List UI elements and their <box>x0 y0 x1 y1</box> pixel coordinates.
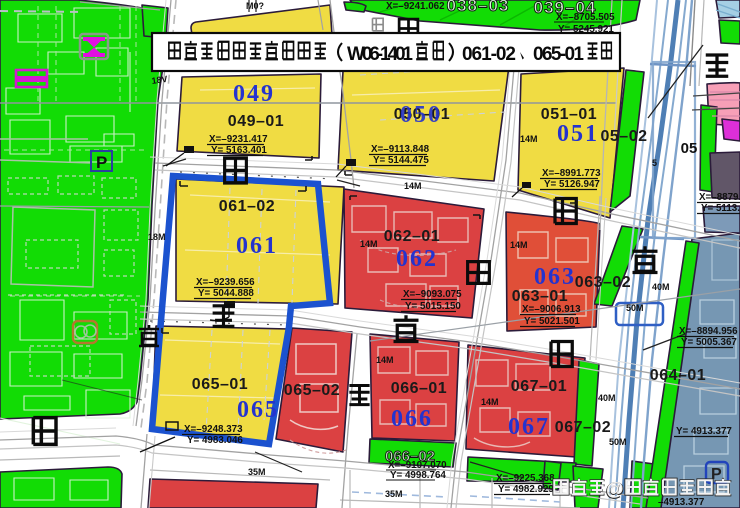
svg-text:062: 062 <box>396 246 438 272</box>
svg-text:Y= 5144.475: Y= 5144.475 <box>373 155 429 166</box>
svg-text:050: 050 <box>400 102 442 128</box>
svg-text:061: 061 <box>236 233 278 259</box>
svg-text:@: @ <box>606 479 624 499</box>
svg-text:X=–9225.368: X=–9225.368 <box>496 473 555 484</box>
svg-text:14M: 14M <box>404 181 422 191</box>
svg-text:14M: 14M <box>510 240 528 250</box>
svg-text:14M: 14M <box>360 239 378 249</box>
svg-text:063: 063 <box>534 264 576 290</box>
svg-text:40M: 40M <box>598 393 616 403</box>
svg-text:066–01: 066–01 <box>391 380 447 397</box>
svg-text:X=–9006.913: X=–9006.913 <box>522 304 581 315</box>
svg-text:35M: 35M <box>248 467 266 477</box>
svg-text:50M: 50M <box>626 303 644 313</box>
svg-text:05: 05 <box>681 140 698 157</box>
svg-text:X=–8705.505: X=–8705.505 <box>556 12 615 23</box>
svg-text:063–02: 063–02 <box>575 274 631 291</box>
svg-text:064–01: 064–01 <box>650 367 706 384</box>
svg-text:065–02: 065–02 <box>284 382 340 399</box>
svg-text:Y= 4998.764: Y= 4998.764 <box>390 470 446 481</box>
svg-text:Y= 5015.150: Y= 5015.150 <box>405 301 461 312</box>
svg-text:065-01: 065-01 <box>533 44 584 65</box>
svg-text:X=–8991.773: X=–8991.773 <box>542 168 601 179</box>
svg-text:W06-1401: W06-1401 <box>347 44 413 65</box>
svg-text:066: 066 <box>391 406 433 432</box>
svg-text:Y= 5126.947: Y= 5126.947 <box>544 179 600 190</box>
svg-text:40M: 40M <box>652 282 670 292</box>
svg-text:X=–9113.848: X=–9113.848 <box>371 144 430 155</box>
svg-text:X=–9239.656: X=–9239.656 <box>196 277 255 288</box>
svg-text:Y= 4983.046: Y= 4983.046 <box>187 435 243 446</box>
svg-text:Y= 5005.367: Y= 5005.367 <box>681 337 737 348</box>
svg-text:5: 5 <box>652 158 657 168</box>
svg-text:Y= 5113.507: Y= 5113.507 <box>701 203 740 214</box>
svg-text:Y= 5021.501: Y= 5021.501 <box>524 316 580 327</box>
svg-text:051: 051 <box>557 121 599 147</box>
svg-text:061-02: 061-02 <box>462 44 516 65</box>
svg-text:061–02: 061–02 <box>219 198 275 215</box>
svg-text:X=–9231.417: X=–9231.417 <box>209 134 268 145</box>
svg-text:–4913.377: –4913.377 <box>658 497 705 508</box>
svg-text:X=–8894.956: X=–8894.956 <box>679 326 738 337</box>
svg-text:18M: 18M <box>148 232 166 242</box>
svg-text:065: 065 <box>237 397 279 423</box>
svg-text:049–01: 049–01 <box>228 113 284 130</box>
svg-text:14M: 14M <box>376 355 394 365</box>
svg-text:067–02: 067–02 <box>555 419 611 436</box>
svg-text:Y= 5163.401: Y= 5163.401 <box>211 145 267 156</box>
svg-text:14M: 14M <box>481 397 499 407</box>
svg-text:Y= 5044.888: Y= 5044.888 <box>198 288 254 299</box>
svg-text:038–03: 038–03 <box>447 0 510 15</box>
svg-text:067: 067 <box>508 414 550 440</box>
svg-text:14M: 14M <box>520 134 538 144</box>
svg-text:067–01: 067–01 <box>511 378 567 395</box>
svg-text:Y= 4982.929: Y= 4982.929 <box>498 484 554 495</box>
svg-text:P: P <box>96 153 107 172</box>
svg-text:X=–8879.356: X=–8879.356 <box>699 192 740 203</box>
svg-text:X=–9093.075: X=–9093.075 <box>403 289 462 300</box>
svg-text:062–01: 062–01 <box>384 228 440 245</box>
svg-text:05–02: 05–02 <box>601 128 648 145</box>
svg-text:X=–9248.373: X=–9248.373 <box>184 424 243 435</box>
svg-text:35M: 35M <box>385 489 403 499</box>
svg-text:065–01: 065–01 <box>192 376 248 393</box>
svg-text:50M: 50M <box>609 437 627 447</box>
svg-text:063–01: 063–01 <box>512 288 568 305</box>
svg-text:Y= 4913.377: Y= 4913.377 <box>676 426 732 437</box>
svg-text:X=–9241.062: X=–9241.062 <box>386 1 445 12</box>
svg-text:049: 049 <box>233 81 275 107</box>
